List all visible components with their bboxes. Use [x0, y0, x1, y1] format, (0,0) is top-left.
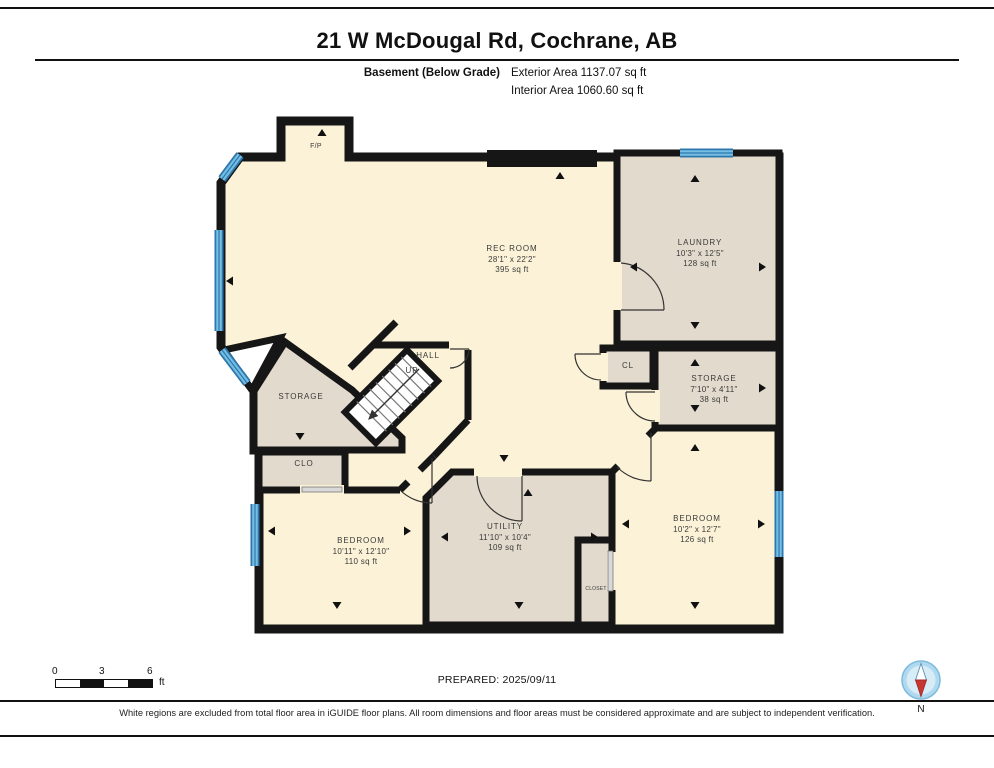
- room-label-utility: UTILITY11'10" x 10'4"109 sq ft: [479, 522, 531, 554]
- room-label-laundry: LAUNDRY10'3" x 12'5"128 sq ft: [676, 238, 724, 270]
- top-wall-thick-segment: [487, 150, 597, 167]
- prepared-date: PREPARED: 2025/09/11: [0, 674, 994, 686]
- room-label-up: UP: [406, 366, 419, 377]
- room-label-closet: CLOSET: [585, 586, 606, 592]
- closet-door-slab: [608, 551, 613, 591]
- room-label-clo: CLO: [294, 459, 313, 470]
- room-clo-shape: [259, 452, 345, 490]
- room-closet-shape: [578, 540, 612, 625]
- disclaimer-text: White regions are excluded from total fl…: [0, 708, 994, 718]
- floor-plan-svg: [0, 0, 994, 768]
- room-label-cl: CL: [622, 361, 634, 372]
- room-label-bedroom-right: BEDROOM10'2" x 12'7"126 sq ft: [673, 514, 721, 546]
- clo-door-slab: [302, 487, 342, 492]
- room-label-hall: HALL: [416, 351, 440, 362]
- room-label-rec-room: REC ROOM28'1" x 22'2"395 sq ft: [486, 244, 537, 276]
- room-label-bedroom-left: BEDROOM10'11" x 12'10"110 sq ft: [333, 536, 390, 568]
- floorplan-page: 21 W McDougal Rd, Cochrane, AB Basement …: [0, 0, 994, 768]
- room-label-fp: F/P: [310, 142, 322, 153]
- room-label-storage-left: STORAGE: [278, 392, 323, 403]
- room-label-storage-right: STORAGE7'10" x 4'11"38 sq ft: [690, 374, 737, 406]
